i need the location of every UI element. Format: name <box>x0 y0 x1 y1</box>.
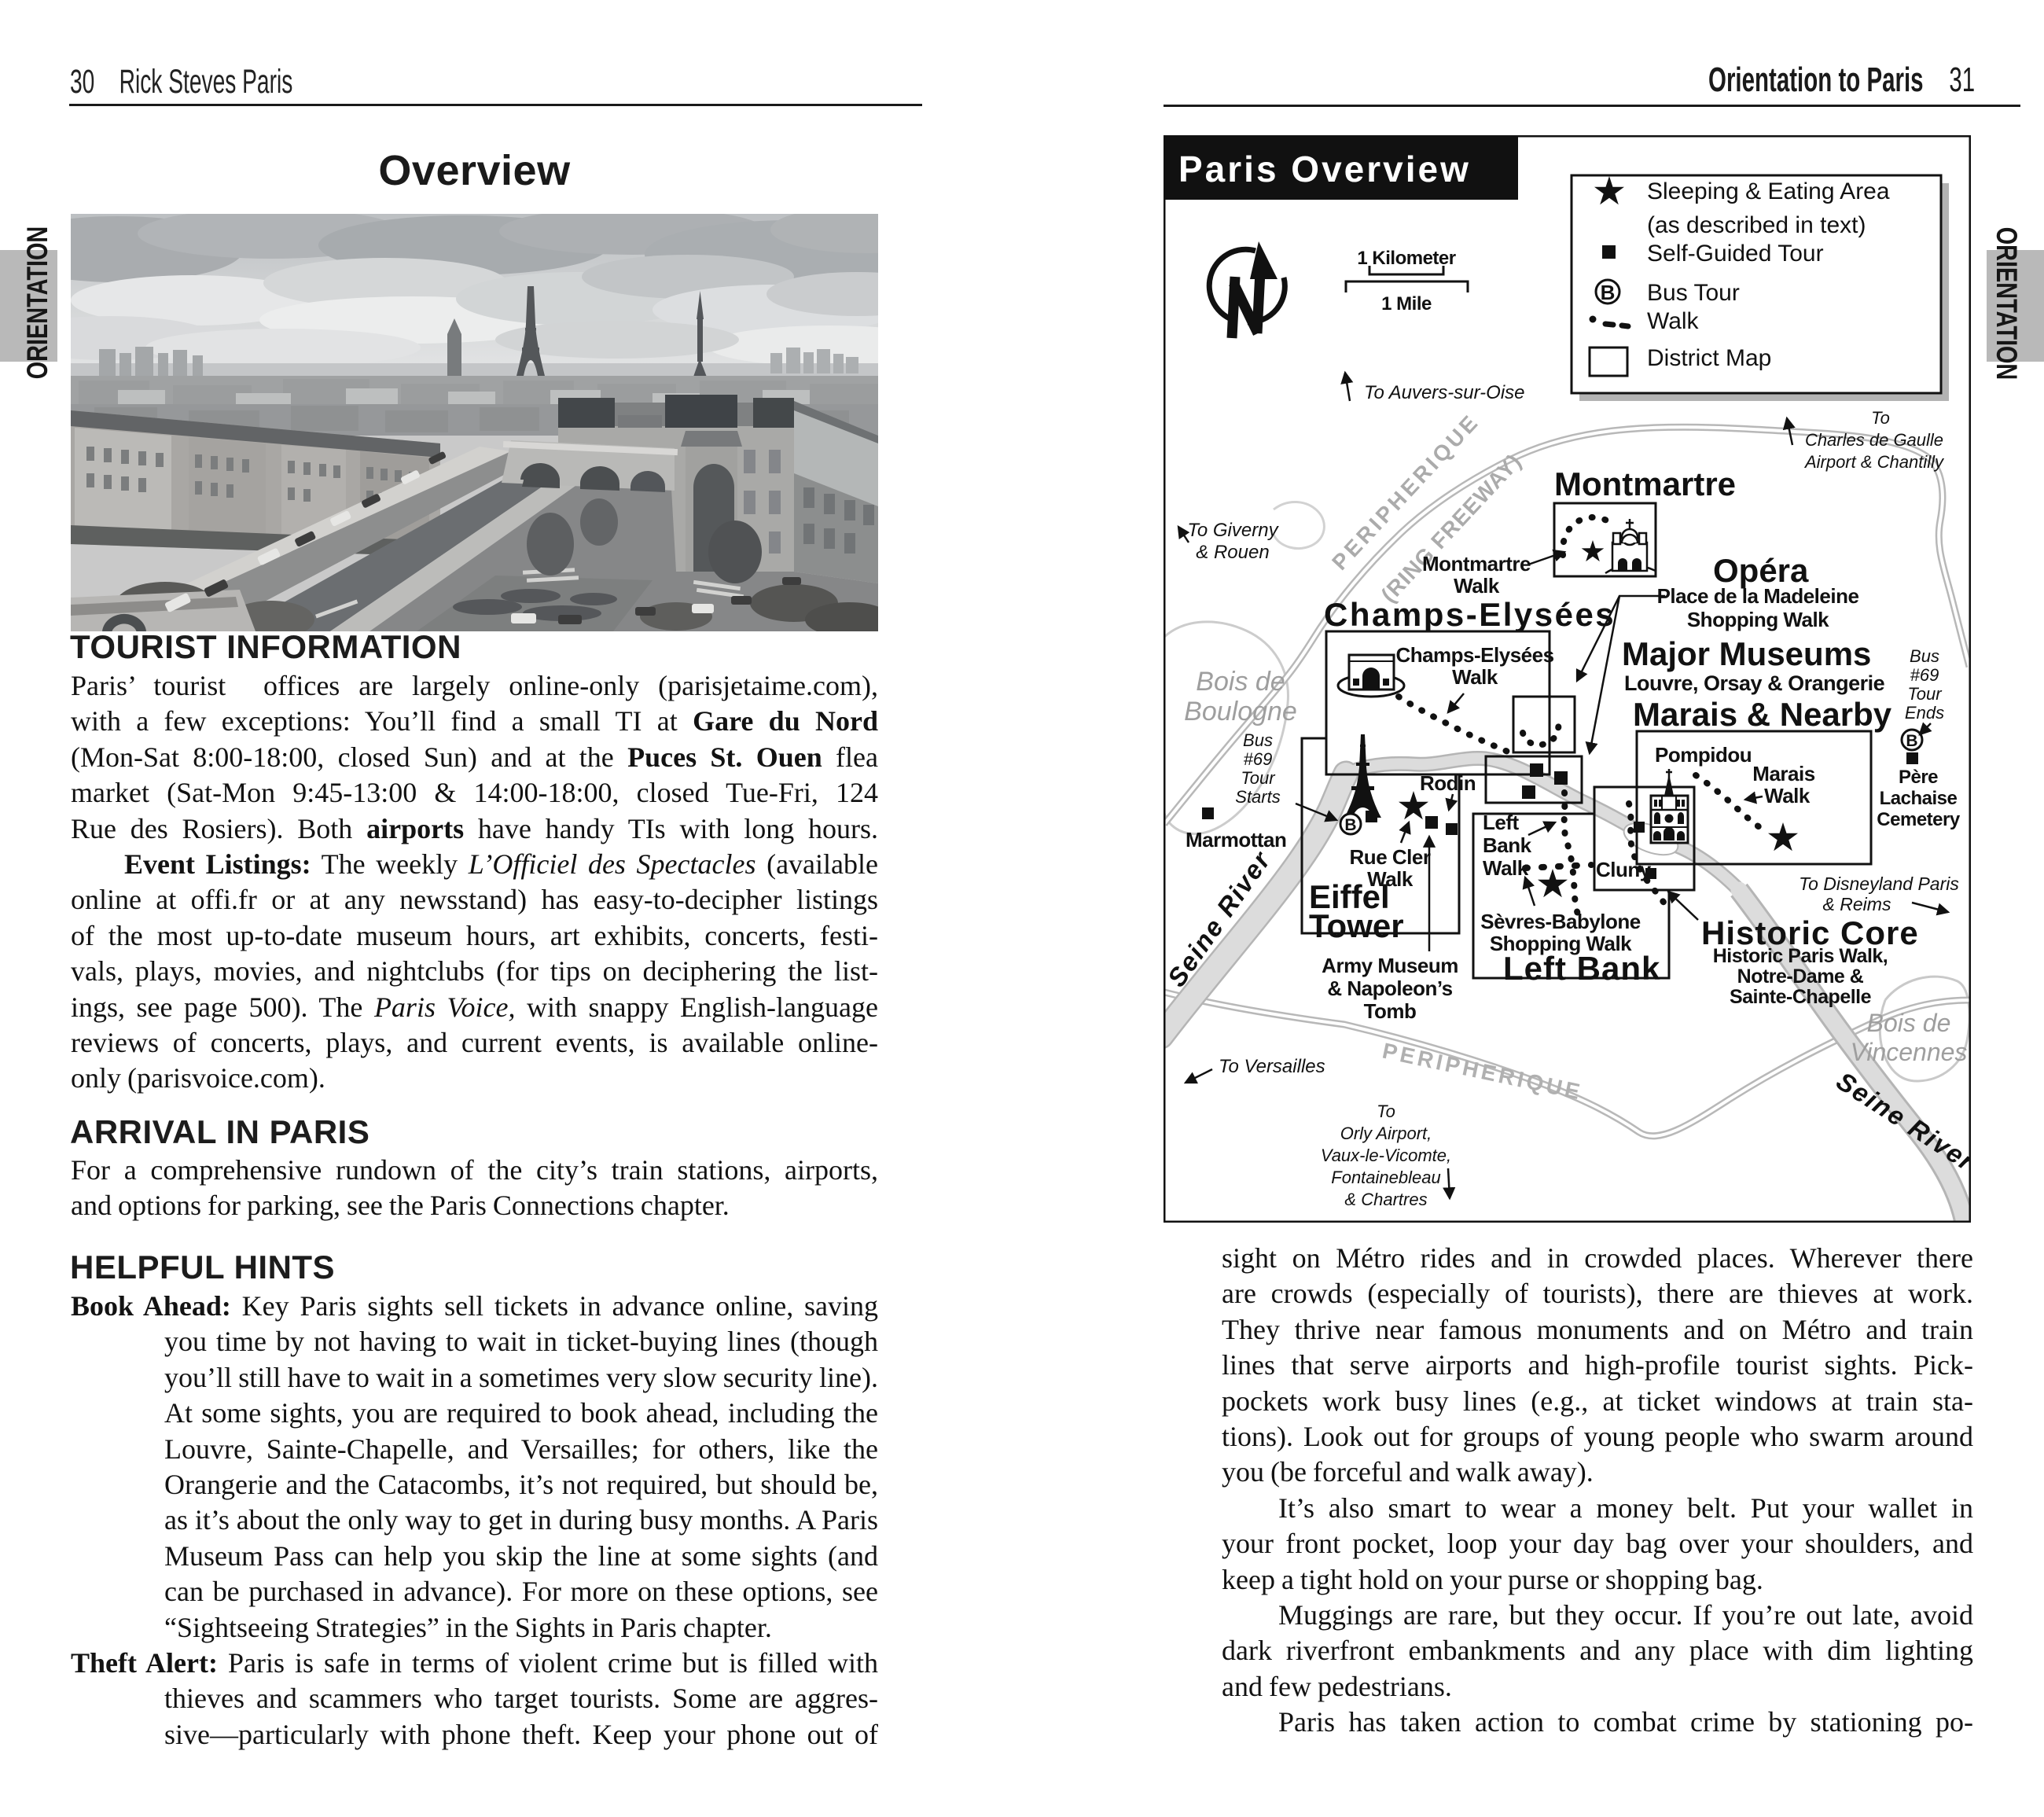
svg-text:Montmartre: Montmartre <box>1554 465 1736 502</box>
svg-text:Sleeping & Eating Area: Sleeping & Eating Area <box>1647 178 1890 204</box>
svg-text:Marais & Nearby: Marais & Nearby <box>1633 696 1892 733</box>
svg-text:To Auvers-sur-Oise: To Auvers-sur-Oise <box>1364 382 1525 403</box>
svg-text:Bois de: Bois de <box>1196 667 1285 697</box>
svg-text:& Chartres: & Chartres <box>1344 1190 1427 1209</box>
svg-text:Champs-Elysées: Champs-Elysées <box>1324 596 1616 633</box>
svg-text:To: To <box>1377 1102 1395 1121</box>
svg-text:Boulogne: Boulogne <box>1184 697 1297 726</box>
svg-text:Bank: Bank <box>1483 833 1532 857</box>
svg-text:Cemetery: Cemetery <box>1877 809 1961 830</box>
svg-text:Historic Paris Walk,: Historic Paris Walk, <box>1713 945 1888 967</box>
svg-text:B: B <box>1906 732 1917 750</box>
svg-text:District Map: District Map <box>1647 345 1771 371</box>
svg-text:Lachaise: Lachaise <box>1880 788 1958 809</box>
svg-text:Self-Guided Tour: Self-Guided Tour <box>1647 241 1824 267</box>
svg-text:Marais: Marais <box>1752 762 1814 785</box>
svg-text:& Napoleon’s: & Napoleon’s <box>1327 977 1452 1000</box>
svg-text:Walk: Walk <box>1367 867 1414 891</box>
svg-text:Walk: Walk <box>1764 784 1811 807</box>
svg-text:Tour: Tour <box>1907 684 1943 704</box>
svg-text:1 Kilometer: 1 Kilometer <box>1357 248 1455 269</box>
svg-text:Pompidou: Pompidou <box>1655 743 1752 767</box>
svg-text:Louvre, Orsay & Orangerie: Louvre, Orsay & Orangerie <box>1624 671 1885 695</box>
svg-text:(as described in text): (as described in text) <box>1647 212 1866 238</box>
svg-text:Orly Airport,: Orly Airport, <box>1340 1124 1432 1143</box>
svg-text:1 Mile: 1 Mile <box>1381 293 1432 314</box>
svg-text:Shopping Walk: Shopping Walk <box>1687 608 1829 631</box>
svg-text:Vaux-le-Vicomte,: Vaux-le-Vicomte, <box>1321 1146 1451 1165</box>
svg-text:Bus: Bus <box>1910 646 1939 666</box>
svg-text:Charles de Gaulle: Charles de Gaulle <box>1805 430 1943 450</box>
svg-text:Walk: Walk <box>1483 856 1529 880</box>
svg-text:Opéra: Opéra <box>1713 552 1809 589</box>
svg-text:Tomb: Tomb <box>1364 999 1417 1023</box>
svg-text:Left Bank: Left Bank <box>1503 950 1660 987</box>
svg-text:Notre-Dame &: Notre-Dame & <box>1737 966 1864 988</box>
svg-text:#69: #69 <box>1910 665 1939 685</box>
svg-text:Marmottan: Marmottan <box>1186 828 1286 851</box>
svg-text:To: To <box>1871 408 1890 428</box>
svg-text:B: B <box>1601 281 1616 304</box>
svg-text:Fontainebleau: Fontainebleau <box>1331 1168 1440 1187</box>
svg-text:To Versailles: To Versailles <box>1219 1056 1325 1077</box>
svg-text:Ends: Ends <box>1905 703 1944 723</box>
svg-text:#69: #69 <box>1244 749 1273 769</box>
svg-text:& Reims: & Reims <box>1823 894 1891 914</box>
svg-text:Sèvres-Babylone: Sèvres-Babylone <box>1480 910 1641 933</box>
svg-text:Walk: Walk <box>1454 574 1500 598</box>
svg-text:& Rouen: & Rouen <box>1196 542 1269 563</box>
svg-text:Place de la Madeleine: Place de la Madeleine <box>1657 584 1859 608</box>
svg-text:Rue Cler: Rue Cler <box>1350 845 1431 869</box>
svg-text:Tower: Tower <box>1309 907 1404 944</box>
svg-text:To Disneyland Paris: To Disneyland Paris <box>1799 874 1959 894</box>
svg-text:Airport & Chantilly: Airport & Chantilly <box>1803 452 1945 472</box>
svg-text:Starts: Starts <box>1235 787 1280 807</box>
svg-text:Tour: Tour <box>1241 768 1276 788</box>
svg-text:Montmartre: Montmartre <box>1422 552 1531 576</box>
svg-text:Père: Père <box>1899 767 1938 788</box>
svg-text:Sainte-Chapelle: Sainte-Chapelle <box>1730 986 1872 1008</box>
svg-text:Walk: Walk <box>1647 308 1700 334</box>
svg-text:Champs-Elysées: Champs-Elysées <box>1395 643 1553 667</box>
svg-text:To Giverny: To Giverny <box>1187 520 1279 541</box>
svg-text:B: B <box>1344 816 1356 834</box>
svg-text:Rodin: Rodin <box>1420 771 1476 795</box>
svg-text:Walk: Walk <box>1452 665 1498 689</box>
svg-text:Left: Left <box>1483 811 1520 834</box>
svg-text:Paris Overview: Paris Overview <box>1178 149 1471 189</box>
svg-text:Major Museums: Major Museums <box>1622 635 1871 672</box>
svg-text:Bus Tour: Bus Tour <box>1647 280 1740 306</box>
svg-text:Vincennes: Vincennes <box>1851 1038 1968 1066</box>
svg-text:Bus: Bus <box>1243 730 1273 750</box>
svg-text:Army Museum: Army Museum <box>1322 954 1458 977</box>
svg-text:Bois de: Bois de <box>1867 1009 1951 1037</box>
svg-text:Cluny: Cluny <box>1596 858 1652 881</box>
